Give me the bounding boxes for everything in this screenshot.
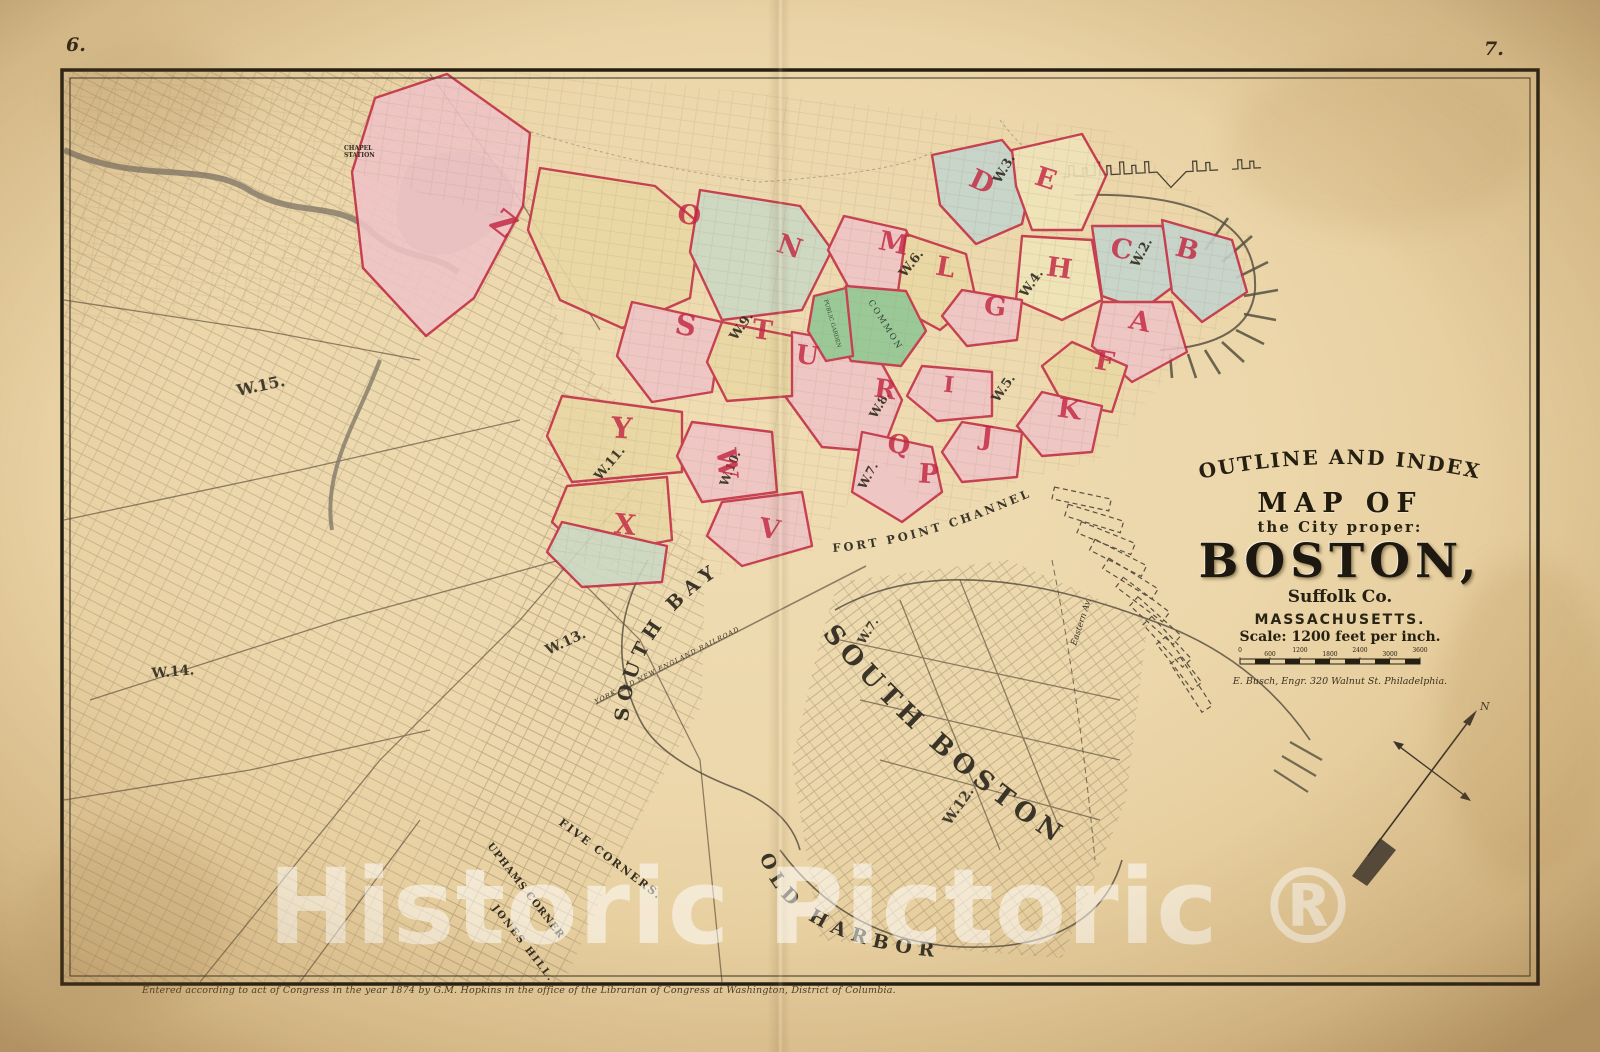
scale-bar: 0 600 1200 1800 2400 3000 3600: [1230, 645, 1450, 671]
cartouche-city: BOSTON,: [1148, 537, 1532, 586]
svg-text:3600: 3600: [1412, 647, 1427, 654]
copyright-line: Entered according to act of Congress in …: [142, 985, 896, 996]
svg-text:W: W: [710, 446, 744, 481]
svg-text:Q: Q: [886, 429, 912, 461]
cartouche-state: MASSACHUSETTS.: [1148, 613, 1532, 628]
svg-text:M: M: [876, 225, 912, 262]
cartouche-county: Suffolk Co.: [1148, 589, 1532, 607]
page-number-left: 6.: [66, 34, 86, 56]
svg-text:1800: 1800: [1322, 651, 1337, 658]
atlas-page: { "page": { "left_number": "6.", "right_…: [0, 0, 1600, 1052]
svg-text:2400: 2400: [1352, 647, 1367, 654]
svg-text:G: G: [982, 291, 1008, 324]
svg-text:Y: Y: [609, 410, 633, 445]
svg-text:OUTLINE AND INDEX: OUTLINE AND INDEX: [1197, 445, 1484, 484]
svg-text:0: 0: [1238, 647, 1242, 654]
title-cartouche: OUTLINE AND INDEX MAP OF the City proper…: [1148, 444, 1532, 687]
cartouche-scale-text: Scale: 1200 feet per inch.: [1148, 630, 1532, 645]
svg-text:T: T: [750, 314, 774, 347]
svg-text:X: X: [612, 507, 637, 542]
svg-text:R: R: [872, 374, 898, 407]
svg-text:3000: 3000: [1382, 651, 1397, 658]
cartouche-arc: OUTLINE AND INDEX: [1148, 444, 1532, 486]
cartouche-engraver: E. Busch, Engr. 320 Walnut St. Philadelp…: [1148, 677, 1532, 687]
svg-text:1200: 1200: [1292, 647, 1307, 654]
page-number-right: 7.: [1484, 38, 1504, 60]
cartouche-map-of: MAP OF: [1148, 490, 1532, 518]
svg-text:O: O: [675, 199, 703, 233]
chapel-station-label-1: CHAPEL: [344, 145, 373, 152]
svg-text:H: H: [1044, 251, 1074, 285]
chapel-station-label-2: STATION: [344, 152, 375, 159]
svg-text:600: 600: [1264, 651, 1276, 658]
city-point-piers: [1274, 742, 1322, 792]
compass-rose: N: [1352, 700, 1490, 886]
svg-text:P: P: [917, 458, 939, 490]
watermark: Historic Pictoric ®: [268, 846, 1361, 968]
compass-north-label: N: [1479, 700, 1490, 713]
cartouche-arc-title: OUTLINE AND INDEX: [1197, 445, 1484, 484]
svg-text:U: U: [794, 340, 821, 373]
